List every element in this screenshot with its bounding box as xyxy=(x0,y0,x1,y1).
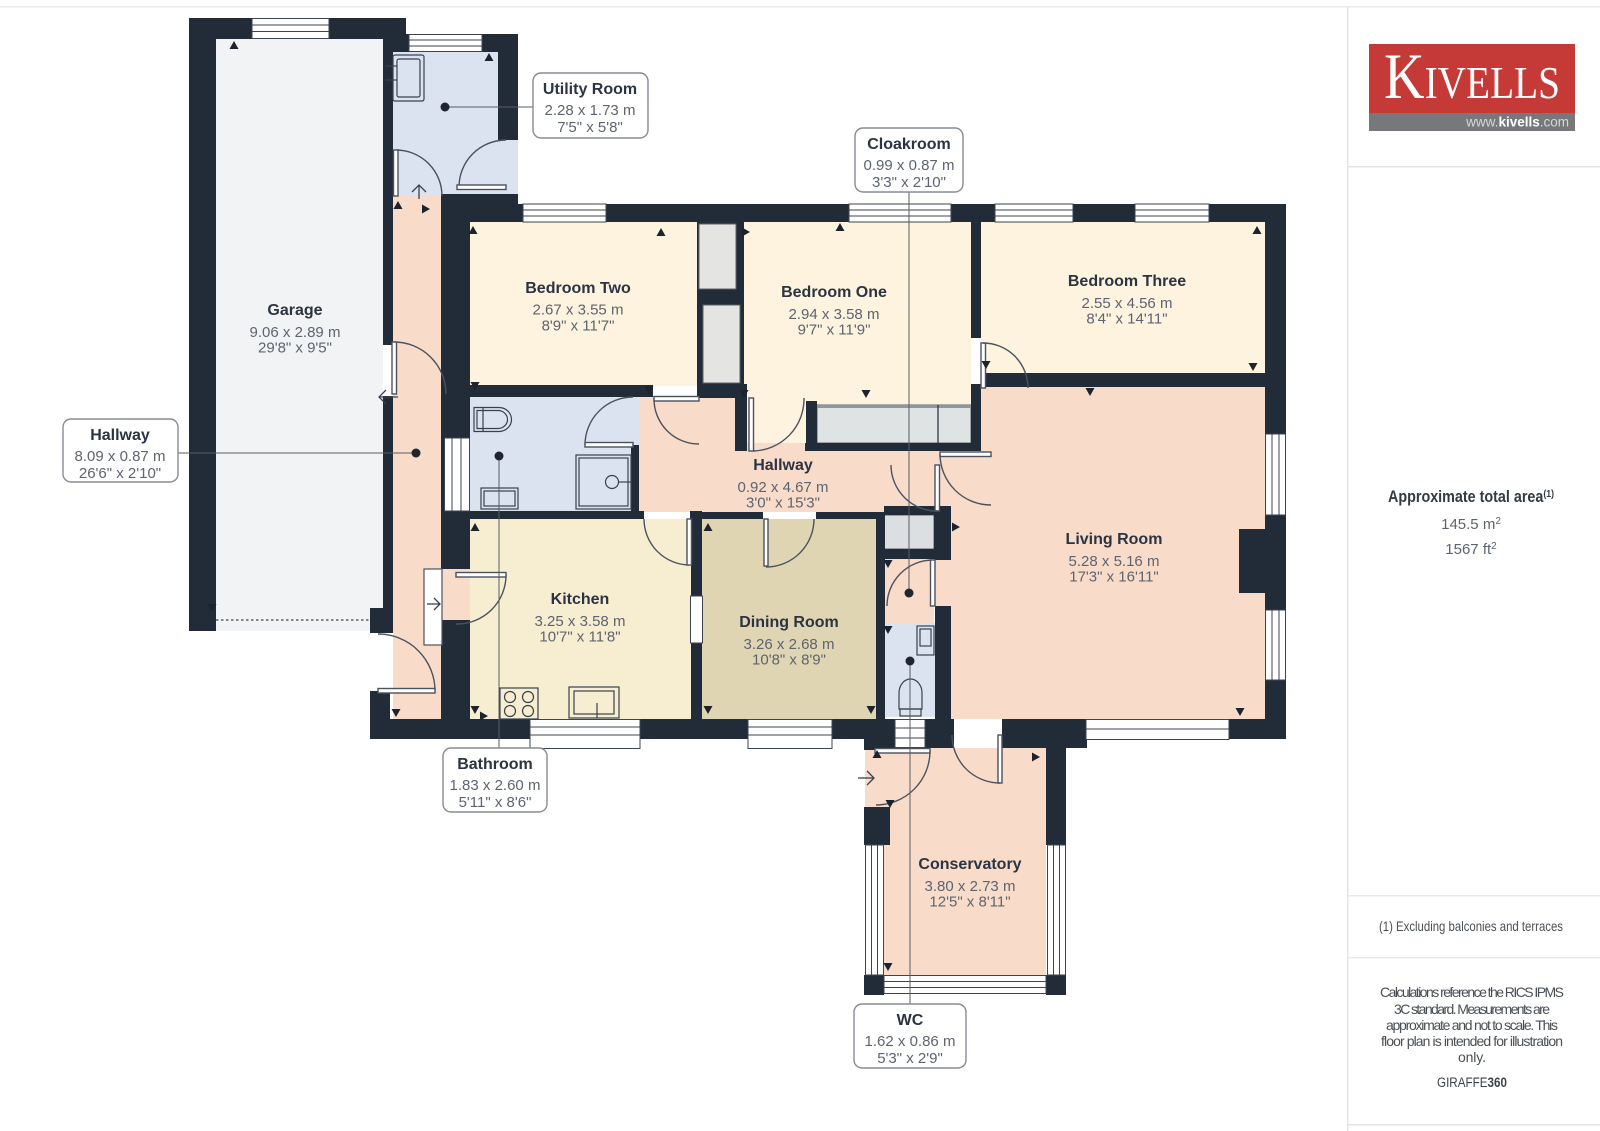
svg-text:3'0" x 15'3": 3'0" x 15'3" xyxy=(746,495,820,512)
svg-text:only.: only. xyxy=(1458,1049,1486,1065)
svg-text:Approximate total area(1): Approximate total area(1) xyxy=(1388,488,1554,506)
svg-text:Cloakroom: Cloakroom xyxy=(867,136,951,153)
svg-text:5.28 x 5.16 m: 5.28 x 5.16 m xyxy=(1069,553,1160,570)
svg-text:Utility Room: Utility Room xyxy=(543,81,637,98)
svg-text:Living Room: Living Room xyxy=(1066,531,1163,548)
svg-text:1567 ft2: 1567 ft2 xyxy=(1445,541,1497,558)
svg-text:10'8" x 8'9": 10'8" x 8'9" xyxy=(752,652,826,669)
svg-text:9.06 x 2.89 m: 9.06 x 2.89 m xyxy=(250,324,341,341)
svg-text:Calculations reference the RIC: Calculations reference the RICS IPMS xyxy=(1380,984,1564,1000)
svg-text:WC: WC xyxy=(897,1012,924,1029)
svg-text:3.25 x 3.58 m: 3.25 x 3.58 m xyxy=(535,613,626,630)
svg-text:0.99 x 0.87 m: 0.99 x 0.87 m xyxy=(864,157,955,174)
svg-text:3.26 x 2.68 m: 3.26 x 2.68 m xyxy=(744,636,835,653)
svg-text:5'11" x 8'6": 5'11" x 8'6" xyxy=(459,794,532,811)
svg-text:Bedroom One: Bedroom One xyxy=(781,284,887,301)
svg-text:Hallway: Hallway xyxy=(90,427,150,444)
svg-text:Hallway: Hallway xyxy=(753,457,813,474)
svg-text:www.kivells.com: www.kivells.com xyxy=(1465,115,1569,130)
svg-text:Kitchen: Kitchen xyxy=(551,591,610,608)
svg-text:8'4" x 14'11": 8'4" x 14'11" xyxy=(1086,311,1167,328)
svg-text:(1) Excluding balconies and te: (1) Excluding balconies and terraces xyxy=(1379,918,1563,934)
svg-text:Bedroom Three: Bedroom Three xyxy=(1068,273,1186,290)
svg-text:17'3" x 16'11": 17'3" x 16'11" xyxy=(1069,569,1159,586)
svg-text:3'3" x 2'10": 3'3" x 2'10" xyxy=(872,174,946,191)
svg-text:8.09 x 0.87 m: 8.09 x 0.87 m xyxy=(75,448,166,465)
svg-text:2.94 x 3.58 m: 2.94 x 3.58 m xyxy=(789,306,880,323)
svg-text:1.62 x 0.86 m: 1.62 x 0.86 m xyxy=(865,1033,956,1050)
svg-text:floor plan is intended for ill: floor plan is intended for illustration xyxy=(1381,1033,1563,1049)
svg-text:7'5" x 5'8": 7'5" x 5'8" xyxy=(557,119,623,136)
svg-text:Garage: Garage xyxy=(267,302,322,319)
svg-text:12'5" x 8'11": 12'5" x 8'11" xyxy=(929,894,1010,911)
svg-text:1.83 x 2.60 m: 1.83 x 2.60 m xyxy=(450,777,541,794)
svg-text:29'8" x 9'5": 29'8" x 9'5" xyxy=(258,340,332,357)
svg-text:3C standard. Measurements are: 3C standard. Measurements are xyxy=(1394,1001,1550,1017)
svg-text:5'3" x 2'9": 5'3" x 2'9" xyxy=(877,1050,943,1067)
svg-text:2.28 x 1.73 m: 2.28 x 1.73 m xyxy=(545,102,636,119)
svg-text:Conservatory: Conservatory xyxy=(918,856,1021,873)
svg-text:8'9" x 11'7": 8'9" x 11'7" xyxy=(542,318,615,335)
svg-text:Dining Room: Dining Room xyxy=(739,614,839,631)
svg-text:Bathroom: Bathroom xyxy=(457,756,533,773)
svg-text:GIRAFFE360: GIRAFFE360 xyxy=(1437,1075,1507,1090)
svg-text:2.67 x 3.55 m: 2.67 x 3.55 m xyxy=(533,302,624,319)
svg-text:10'7" x 11'8": 10'7" x 11'8" xyxy=(539,629,620,646)
svg-text:26'6" x 2'10": 26'6" x 2'10" xyxy=(79,465,161,482)
svg-text:approximate and not to scale.: approximate and not to scale. This xyxy=(1386,1017,1558,1033)
svg-text:9'7" x 11'9": 9'7" x 11'9" xyxy=(798,322,871,339)
svg-text:3.80 x 2.73 m: 3.80 x 2.73 m xyxy=(925,878,1016,895)
svg-text:145.5 m2: 145.5 m2 xyxy=(1441,516,1501,533)
svg-text:Bedroom Two: Bedroom Two xyxy=(525,280,631,297)
svg-text:0.92 x 4.67 m: 0.92 x 4.67 m xyxy=(738,479,829,496)
svg-text:2.55 x 4.56 m: 2.55 x 4.56 m xyxy=(1082,295,1173,312)
